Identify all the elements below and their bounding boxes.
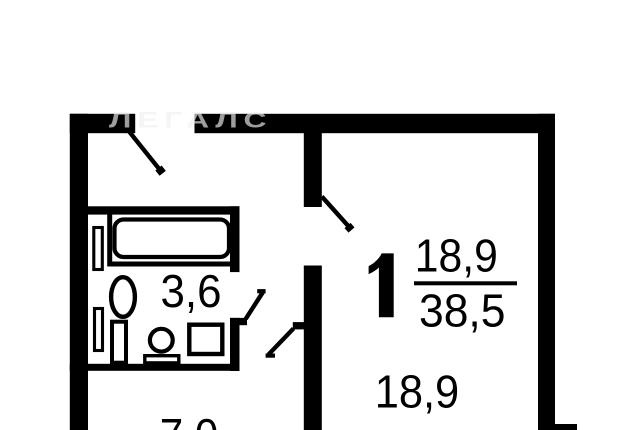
svg-text:18,9: 18,9	[415, 230, 498, 282]
svg-text:3,6: 3,6	[161, 265, 222, 317]
svg-text:ЛЕГАЛС: ЛЕГАЛС	[109, 107, 272, 132]
svg-text:38,5: 38,5	[419, 285, 506, 337]
svg-text:7,0: 7,0	[160, 409, 219, 430]
svg-text:18,9: 18,9	[375, 366, 460, 418]
